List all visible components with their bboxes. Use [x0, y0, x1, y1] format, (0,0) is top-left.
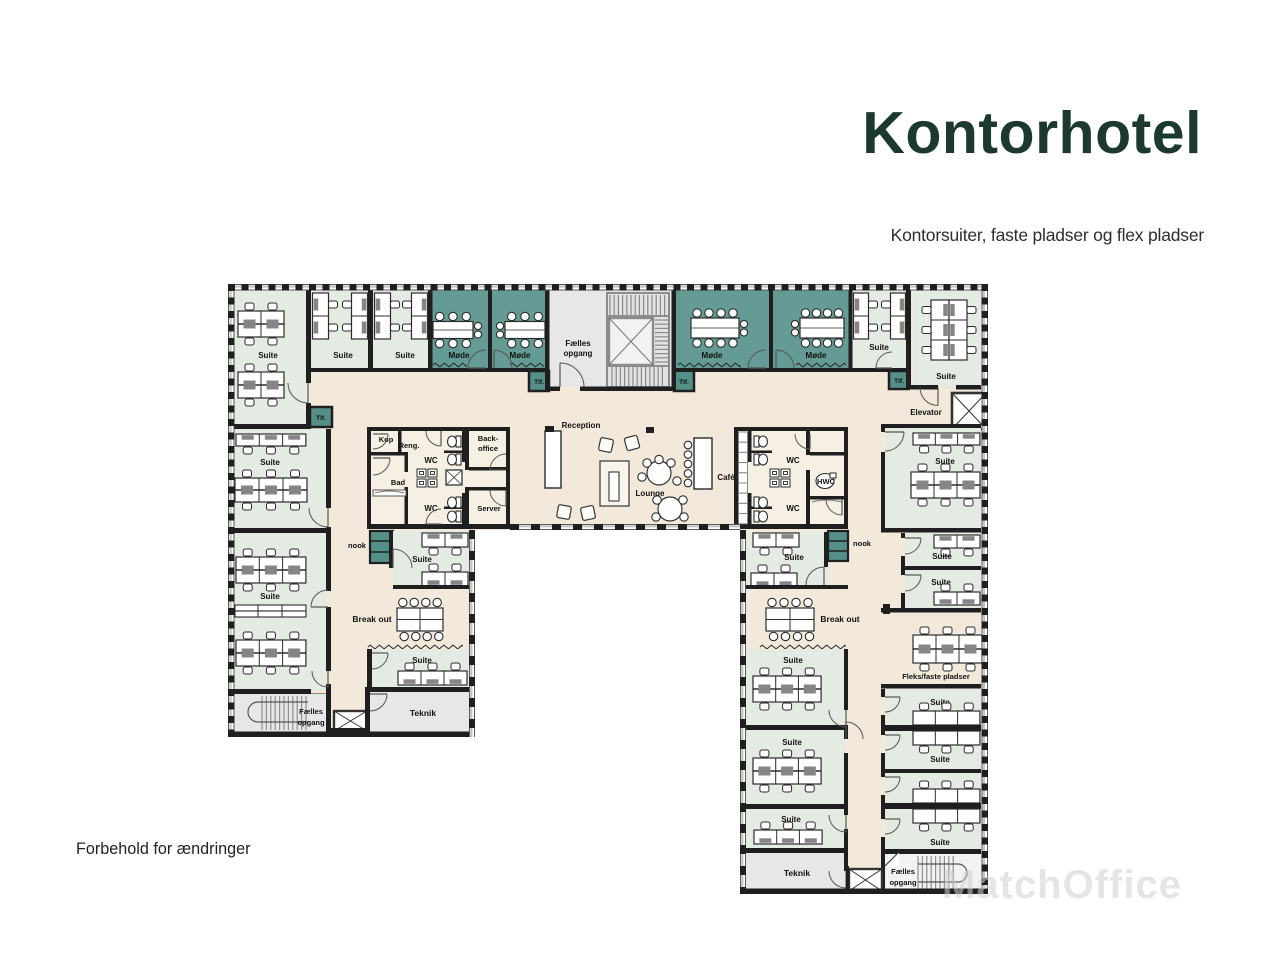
svg-text:Suite: Suite — [932, 552, 952, 561]
svg-text:Suite: Suite — [930, 755, 950, 764]
svg-text:Møde: Møde — [702, 351, 723, 360]
svg-text:nook: nook — [853, 539, 872, 548]
svg-text:opgang: opgang — [889, 878, 916, 887]
svg-text:Suite: Suite — [395, 351, 415, 360]
svg-text:Suite: Suite — [412, 555, 432, 564]
svg-text:Suite: Suite — [258, 351, 278, 360]
svg-text:WC: WC — [424, 456, 438, 465]
svg-text:Kontorsuiter, faste pladser og: Kontorsuiter, faste pladser og flex plad… — [891, 225, 1205, 245]
svg-text:Kontorhotel: Kontorhotel — [862, 100, 1202, 166]
svg-text:Forbehold for ændringer: Forbehold for ændringer — [76, 840, 251, 858]
svg-text:Suite: Suite — [260, 458, 280, 467]
svg-text:WC: WC — [424, 504, 438, 513]
svg-text:Break out: Break out — [352, 614, 391, 624]
svg-text:Møde: Møde — [806, 351, 827, 360]
svg-text:Café: Café — [717, 473, 735, 482]
svg-text:Suite: Suite — [783, 656, 803, 665]
svg-text:Teknik: Teknik — [784, 868, 811, 878]
svg-text:Suite: Suite — [782, 738, 802, 747]
svg-text:Suite: Suite — [784, 553, 804, 562]
svg-text:opgang: opgang — [564, 349, 593, 358]
svg-text:Fælles: Fælles — [299, 707, 323, 716]
svg-text:office: office — [478, 444, 498, 453]
svg-text:Suite: Suite — [260, 592, 280, 601]
svg-text:Back-: Back- — [478, 434, 499, 443]
svg-text:WC: WC — [786, 456, 800, 465]
svg-text:Fælles: Fælles — [565, 339, 591, 348]
svg-text:Suite: Suite — [869, 343, 889, 352]
svg-text:Tlf.: Tlf. — [894, 378, 904, 385]
svg-text:Reng.: Reng. — [399, 441, 420, 450]
svg-text:Fælles: Fælles — [891, 867, 915, 876]
svg-text:MatchOffice: MatchOffice — [942, 863, 1182, 907]
svg-text:Bad: Bad — [391, 478, 406, 487]
svg-text:Tlf.: Tlf. — [679, 379, 689, 386]
svg-text:Elevator: Elevator — [910, 408, 942, 417]
svg-text:Suite: Suite — [936, 372, 956, 381]
svg-text:Fleks/faste pladser: Fleks/faste pladser — [902, 672, 970, 681]
svg-text:WC: WC — [786, 504, 800, 513]
svg-text:Møde: Møde — [449, 351, 470, 360]
svg-text:Break out: Break out — [820, 614, 859, 624]
svg-text:opgang: opgang — [297, 718, 324, 727]
svg-text:Suite: Suite — [930, 838, 950, 847]
svg-text:Suite: Suite — [333, 351, 353, 360]
svg-text:Tlf.: Tlf. — [534, 379, 544, 386]
svg-text:HWC: HWC — [817, 477, 835, 486]
svg-text:Lounge: Lounge — [636, 489, 665, 498]
svg-text:Tlf.: Tlf. — [316, 415, 326, 422]
svg-text:Reception: Reception — [562, 421, 601, 430]
svg-text:Kop: Kop — [379, 435, 394, 444]
svg-text:Server: Server — [477, 504, 500, 513]
svg-text:nook: nook — [348, 541, 367, 550]
svg-text:Teknik: Teknik — [410, 708, 437, 718]
svg-text:Møde: Møde — [510, 351, 531, 360]
